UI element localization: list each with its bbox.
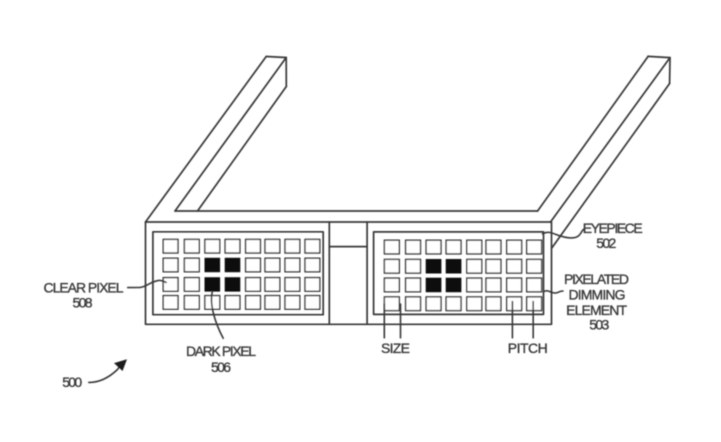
svg-text:DARK PIXEL: DARK PIXEL — [186, 343, 256, 359]
svg-text:PIXELATED: PIXELATED — [564, 271, 629, 287]
svg-text:508: 508 — [73, 295, 93, 311]
svg-text:DIMMING: DIMMING — [569, 287, 626, 303]
svg-text:SIZE: SIZE — [381, 340, 410, 356]
svg-text:500: 500 — [62, 374, 82, 390]
svg-text:CLEAR PIXEL: CLEAR PIXEL — [44, 280, 124, 296]
svg-text:503: 503 — [589, 317, 609, 333]
svg-text:ELEMENT: ELEMENT — [566, 302, 627, 318]
svg-text:502: 502 — [596, 235, 616, 251]
svg-text:506: 506 — [211, 359, 231, 375]
svg-text:EYEPIECE: EYEPIECE — [583, 220, 643, 236]
svg-text:PITCH: PITCH — [508, 340, 548, 356]
